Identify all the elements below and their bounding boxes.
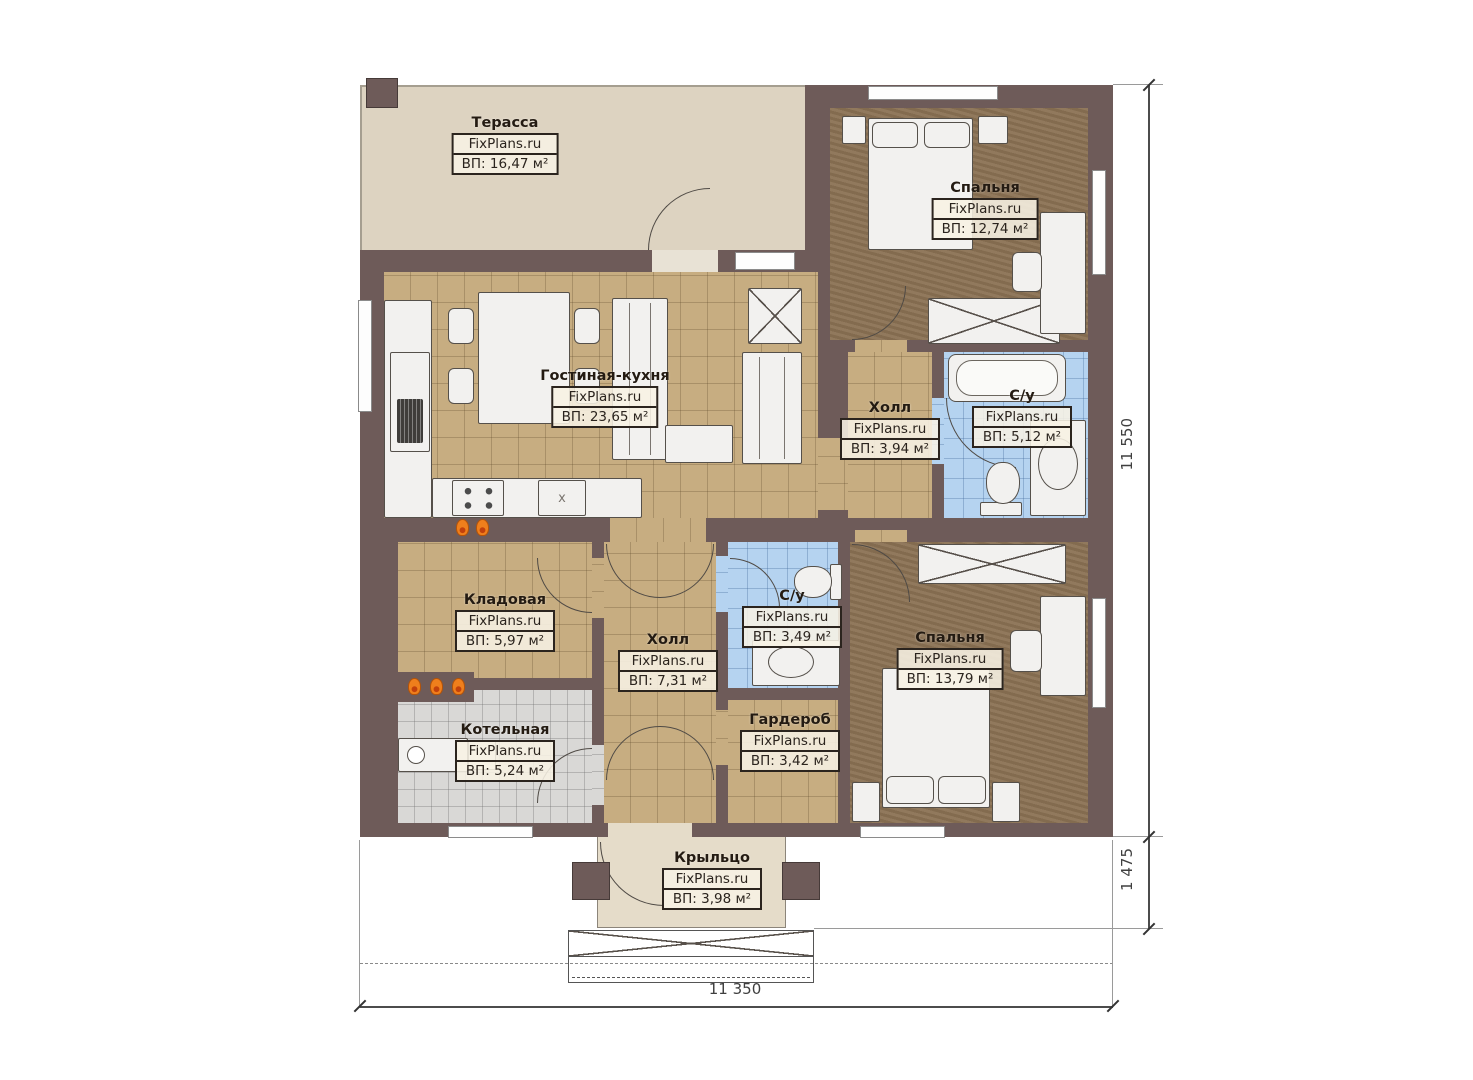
watermark-box: FixPlans.ru ВП: 3,94 м² — [840, 418, 940, 460]
room-name: Котельная — [455, 722, 555, 738]
dimension-value-right-porch: 1 475 — [1118, 848, 1136, 891]
room-label-bedroom-bottom: Спальня FixPlans.ru ВП: 13,79 м² — [897, 630, 1004, 690]
floor-plan-canvas: x — [0, 0, 1473, 1080]
door-opening-bathroom-center — [716, 556, 728, 612]
nightstand — [852, 782, 880, 822]
door-opening-terrace — [652, 250, 718, 272]
room-floor-terrace — [360, 85, 807, 250]
flame-icon — [476, 519, 489, 536]
window-bedroom-bottom-right — [1092, 598, 1106, 708]
watermark-box: FixPlans.ru ВП: 5,24 м² — [455, 740, 555, 782]
dining-chair — [574, 308, 600, 344]
watermark-text: FixPlans.ru — [744, 608, 840, 628]
watermark-box: FixPlans.ru ВП: 3,49 м² — [742, 606, 842, 648]
room-label-bathroom-center: С/у FixPlans.ru ВП: 3,49 м² — [742, 588, 842, 648]
toilet-bowl — [986, 462, 1020, 504]
room-label-bathroom-top: С/у FixPlans.ru ВП: 5,12 м² — [972, 388, 1072, 448]
watermark-text: FixPlans.ru — [742, 732, 838, 752]
toilet-tank — [980, 502, 1022, 516]
dimension-line-right-porch — [1148, 837, 1150, 929]
room-name: Гардероб — [740, 712, 840, 728]
desk-chair — [1010, 630, 1042, 672]
room-label-hall-right: Холл FixPlans.ru ВП: 3,94 м² — [840, 400, 940, 460]
room-name: С/у — [742, 588, 842, 604]
watermark-text: FixPlans.ru — [457, 742, 553, 762]
dining-chair — [448, 368, 474, 404]
flame-icon — [408, 678, 421, 695]
tv-unit-doors — [759, 357, 785, 459]
watermark-box: FixPlans.ru ВП: 23,65 м² — [552, 386, 659, 428]
window-bedroom-bottom — [860, 826, 945, 838]
room-name: Крыльцо — [662, 850, 762, 866]
room-label-porch: Крыльцо FixPlans.ru ВП: 3,98 м² — [662, 850, 762, 910]
room-area: ВП: 23,65 м² — [554, 408, 657, 426]
watermark-text: FixPlans.ru — [457, 612, 553, 632]
dimension-value-right-total: 11 550 — [1118, 418, 1136, 471]
room-name: Гостиная-кухня — [540, 368, 669, 384]
extension-line — [1113, 836, 1163, 837]
porch-column — [782, 862, 820, 900]
flame-icon — [452, 678, 465, 695]
nightstand — [992, 782, 1020, 822]
dishwasher-label: x — [539, 481, 585, 515]
room-name: Спальня — [932, 180, 1039, 196]
door-opening-wardrobe — [716, 710, 728, 765]
nightstand — [842, 116, 866, 144]
steps-dash — [572, 977, 810, 978]
watermark-text: FixPlans.ru — [899, 650, 1002, 670]
room-name: Спальня — [897, 630, 1004, 646]
wardrobe-unit — [918, 544, 1066, 584]
sink-bowl — [397, 399, 423, 443]
washbasin — [768, 646, 814, 678]
extension-dashed-line — [360, 963, 1113, 964]
room-label-wardrobe: Гардероб FixPlans.ru ВП: 3,42 м² — [740, 712, 840, 772]
room-label-living-kitchen: Гостиная-кухня FixPlans.ru ВП: 23,65 м² — [540, 368, 669, 428]
watermark-text: FixPlans.ru — [554, 388, 657, 408]
extension-line — [814, 928, 1163, 929]
room-label-storage: Кладовая FixPlans.ru ВП: 5,97 м² — [455, 592, 555, 652]
door-opening-storage — [592, 558, 604, 618]
room-area: ВП: 3,98 м² — [664, 890, 760, 908]
dimension-value-bottom: 11 350 — [640, 980, 830, 998]
window-bedroom-top-right — [1092, 170, 1106, 275]
watermark-text: FixPlans.ru — [664, 870, 760, 890]
watermark-box: FixPlans.ru ВП: 13,79 м² — [897, 648, 1004, 690]
watermark-text: FixPlans.ru — [842, 420, 938, 440]
door-opening-bedroom-top — [855, 340, 907, 352]
room-area: ВП: 5,97 м² — [457, 632, 553, 650]
room-area: ВП: 3,49 м² — [744, 628, 840, 646]
entrance-steps — [568, 930, 814, 983]
flame-icon — [456, 519, 469, 536]
pillow — [886, 776, 934, 804]
dimension-line-bottom — [360, 1006, 1113, 1008]
pillow — [872, 122, 918, 148]
room-area: ВП: 3,94 м² — [842, 440, 938, 458]
window-living-left — [358, 300, 372, 412]
room-name: С/у — [972, 388, 1072, 404]
room-name: Холл — [840, 400, 940, 416]
pillow — [938, 776, 986, 804]
watermark-text: FixPlans.ru — [974, 408, 1070, 428]
extension-line — [1112, 840, 1113, 1008]
room-name: Холл — [618, 632, 718, 648]
porch-column — [572, 862, 610, 900]
watermark-box: FixPlans.ru ВП: 3,42 м² — [740, 730, 840, 772]
room-area: ВП: 5,12 м² — [974, 428, 1070, 446]
dimension-line-right-total — [1148, 85, 1150, 837]
extension-line — [1113, 84, 1163, 85]
watermark-box: FixPlans.ru ВП: 16,47 м² — [452, 133, 559, 175]
window-boiler-bottom — [448, 826, 533, 838]
kitchen-sink — [390, 352, 430, 452]
door-opening-boiler — [592, 745, 604, 805]
vent-shaft — [748, 288, 802, 344]
steps-cross — [569, 931, 813, 957]
tv-unit — [742, 352, 802, 464]
room-area: ВП: 13,79 м² — [899, 670, 1002, 688]
room-area: ВП: 3,42 м² — [742, 752, 838, 770]
window-living-top — [735, 252, 795, 270]
stove — [452, 480, 504, 516]
island-extension — [665, 425, 733, 463]
desk-chair — [1012, 252, 1042, 292]
door-opening-bedroom-bottom — [855, 530, 907, 542]
room-area: ВП: 12,74 м² — [934, 220, 1037, 238]
room-label-bedroom-top: Спальня FixPlans.ru ВП: 12,74 м² — [932, 180, 1039, 240]
desk — [1040, 596, 1086, 696]
dining-chair — [448, 308, 474, 344]
room-label-terrace: Терасса FixPlans.ru ВП: 16,47 м² — [452, 115, 559, 175]
desk — [1040, 212, 1086, 334]
room-area: ВП: 5,24 м² — [457, 762, 553, 780]
room-area: ВП: 16,47 м² — [454, 155, 557, 173]
room-name: Кладовая — [455, 592, 555, 608]
extension-line — [359, 840, 360, 1008]
watermark-box: FixPlans.ru ВП: 7,31 м² — [618, 650, 718, 692]
watermark-box: FixPlans.ru ВП: 5,12 м² — [972, 406, 1072, 448]
boiler-burner — [407, 746, 425, 764]
nightstand — [978, 116, 1008, 144]
room-label-boiler: Котельная FixPlans.ru ВП: 5,24 м² — [455, 722, 555, 782]
room-label-hall-center: Холл FixPlans.ru ВП: 7,31 м² — [618, 632, 718, 692]
flame-icon — [430, 678, 443, 695]
door-opening-porch — [608, 823, 692, 837]
watermark-text: FixPlans.ru — [620, 652, 716, 672]
terrace-column — [366, 78, 398, 108]
pillow — [924, 122, 970, 148]
dishwasher: x — [538, 480, 586, 516]
watermark-text: FixPlans.ru — [454, 135, 557, 155]
watermark-box: FixPlans.ru ВП: 3,98 м² — [662, 868, 762, 910]
window-bedroom-top — [868, 86, 998, 100]
watermark-text: FixPlans.ru — [934, 200, 1037, 220]
watermark-box: FixPlans.ru ВП: 12,74 м² — [932, 198, 1039, 240]
door-opening-living-hallcenter — [610, 518, 706, 542]
room-area: ВП: 7,31 м² — [620, 672, 716, 690]
watermark-box: FixPlans.ru ВП: 5,97 м² — [455, 610, 555, 652]
room-name: Терасса — [452, 115, 559, 131]
